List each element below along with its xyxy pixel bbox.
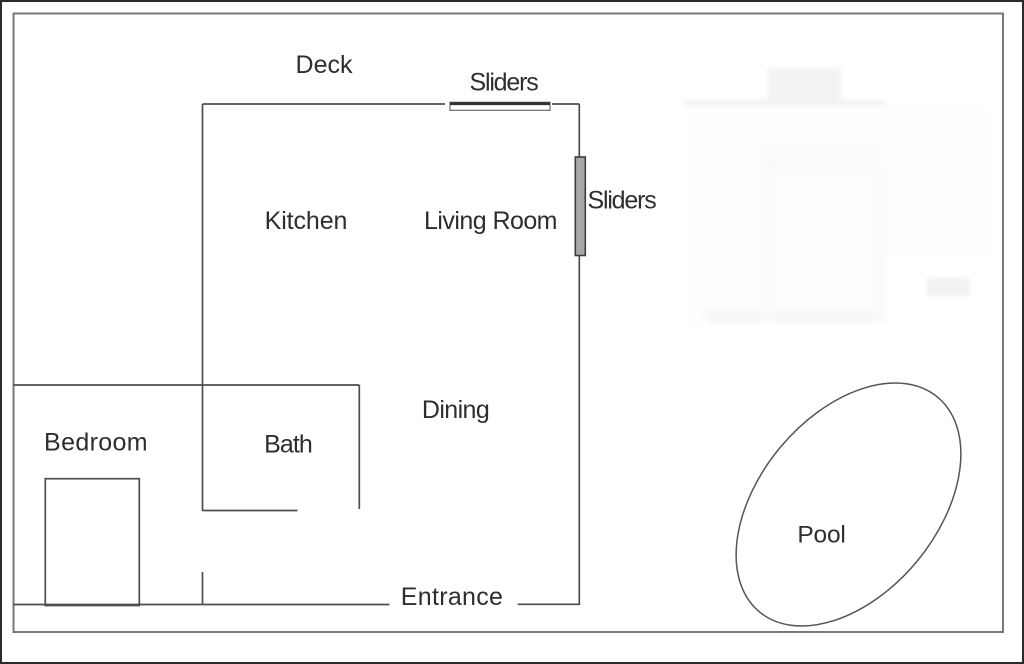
- svg-text:Deck: Deck: [296, 51, 353, 79]
- svg-text:Pool: Pool: [797, 522, 845, 549]
- svg-text:Bedroom: Bedroom: [44, 429, 148, 457]
- svg-text:Living Room: Living Room: [424, 207, 557, 235]
- svg-text:Bath: Bath: [264, 431, 312, 459]
- svg-text:Sliders: Sliders: [469, 69, 538, 97]
- svg-text:Dining: Dining: [422, 396, 489, 424]
- svg-text:Sliders: Sliders: [587, 187, 656, 215]
- svg-text:Entrance: Entrance: [401, 583, 503, 611]
- svg-text:Kitchen: Kitchen: [265, 207, 348, 235]
